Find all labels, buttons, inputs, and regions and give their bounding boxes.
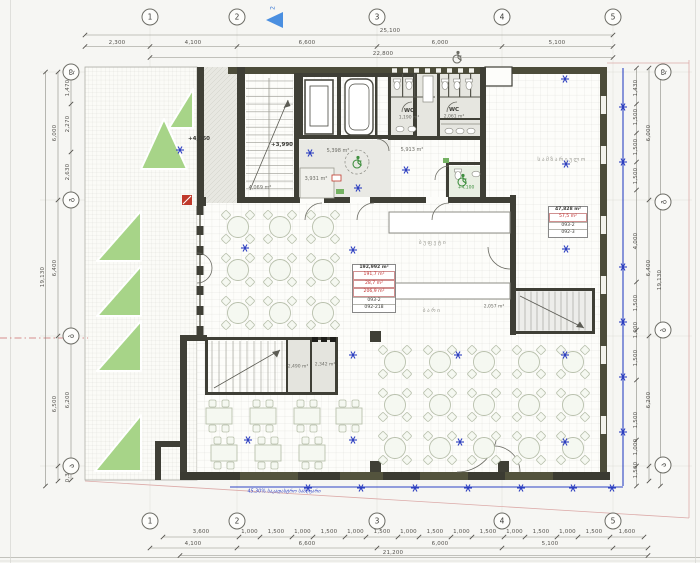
sprinkler-asterisk-icon: [569, 485, 577, 492]
sprinkler-asterisk-icon: [608, 485, 616, 492]
section-cut-arrow-icon: [266, 12, 283, 28]
floor-plan-drawing: 2 45,30% საკადასტრო საზღვარი 3,6001,0001…: [0, 0, 700, 563]
sprinkler-asterisk-icon: [517, 485, 525, 492]
sprinkler-asterisk-icon: [411, 485, 419, 492]
sprinkler-asterisk-icon: [304, 485, 312, 492]
green-door-marker: [443, 158, 449, 163]
sprinkler-asterisk-icon: [464, 485, 472, 492]
green-door-marker: [336, 189, 344, 194]
plan-graphics: [0, 0, 700, 563]
wheelchair-accessibility-icon: [453, 51, 462, 63]
sprinkler-asterisk-icon: [357, 485, 365, 492]
red-annotation-box: [332, 175, 341, 181]
